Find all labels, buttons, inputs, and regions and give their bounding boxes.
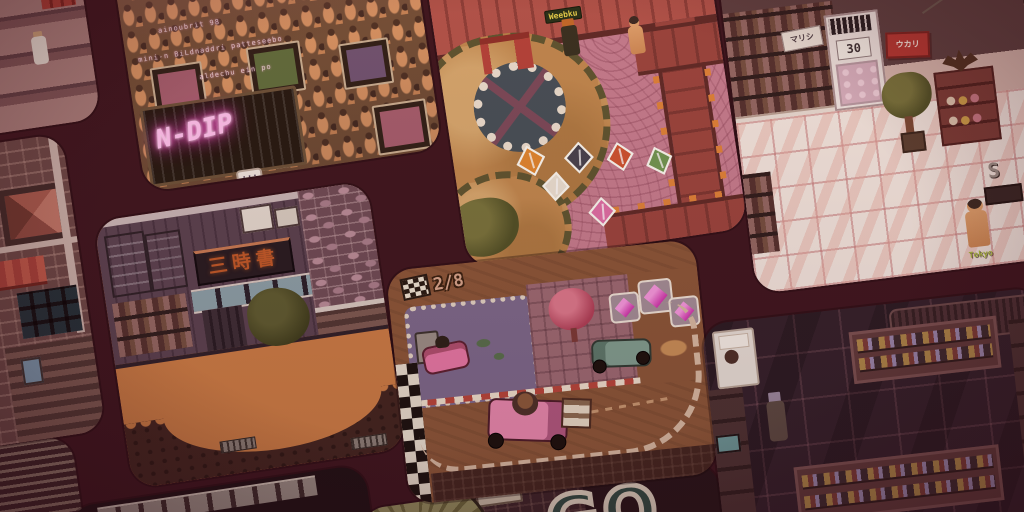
tree-pot [900,130,926,153]
panel-left-building [0,133,106,467]
plush-toys [944,90,989,109]
panel-race-track: 2/8 [386,239,719,505]
pixel-world-collage: GO ainoubrit 98 mini-n BiLdnaddri pattes… [0,0,1024,512]
blue-window [20,357,44,386]
player-character [965,209,991,247]
white-notice [274,206,301,229]
white-notice [239,203,274,233]
storefront-door [202,305,248,351]
tv-screen [715,433,741,454]
window-grid [17,285,83,339]
bed [712,327,760,389]
machine-glass [836,60,883,107]
hanging-red-sign: ウカリ [885,31,930,59]
panel-zen-garden: Weebku [422,0,748,269]
panel-library [701,287,1024,512]
machine-vent [828,14,872,35]
machine-sign: 30 [836,36,872,60]
exhaust-pipes [561,398,592,429]
plush-toys [947,110,992,129]
panel-crowd-plaza: ainoubrit 98 mini-n BiLdnaddri patteseeb… [101,0,442,193]
chat-bubble-icon: ... [236,167,265,191]
stall-frame [338,37,394,90]
panel-market-shop: 30 マリシ ウカリ S Tokyo [716,0,1024,294]
scaffold-ledge [5,336,106,443]
pillow [718,333,749,350]
vending-machine: 30 [824,9,889,111]
side-rack [112,293,193,357]
kart-driver-hair [435,335,450,348]
panel-blinds-corner [0,435,97,512]
torii-gate [479,32,534,75]
stall-frame [372,98,433,155]
sleeping-character [724,349,739,364]
plush-display-stand [933,66,1002,147]
window-strip [97,475,318,512]
panel-street: 三時書 [94,181,407,489]
